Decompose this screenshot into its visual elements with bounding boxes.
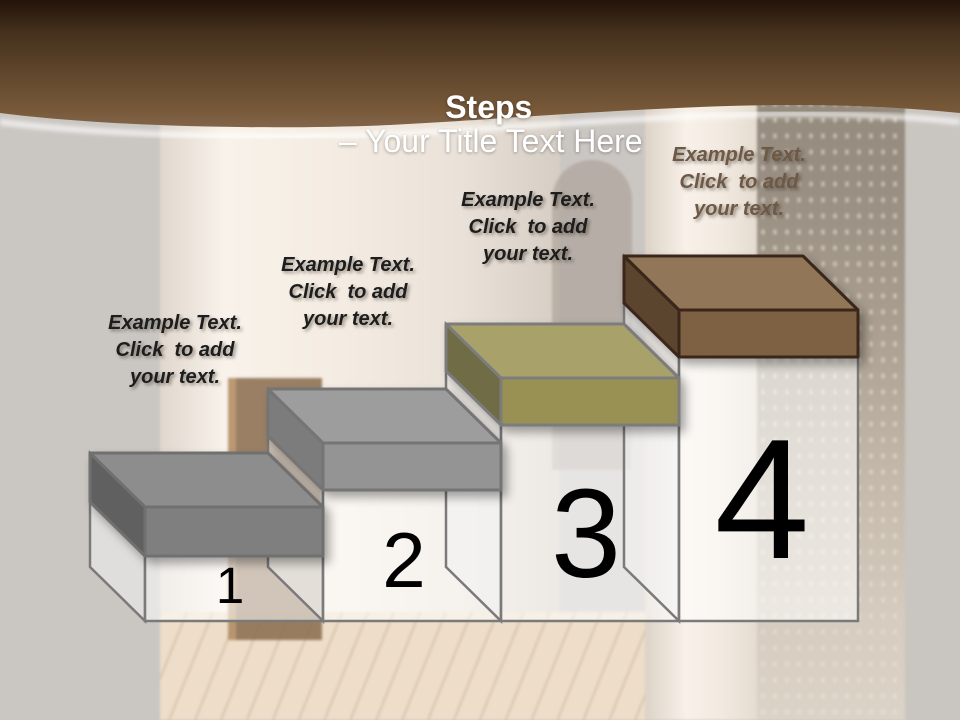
title-rest-text: – Your Title Text Here bbox=[339, 123, 643, 159]
step-1-lid-front[interactable] bbox=[145, 507, 323, 556]
step-3-lid-front[interactable] bbox=[501, 378, 679, 425]
slide-canvas: 1 2 3 4 Example Text. Click to add your … bbox=[0, 0, 960, 720]
step-2-lid-front[interactable] bbox=[323, 443, 501, 490]
step-2-label-line-3: your text. bbox=[248, 306, 448, 333]
step-4-number[interactable]: 4 bbox=[714, 404, 809, 595]
step-3-number[interactable]: 3 bbox=[551, 463, 621, 604]
step-2-label-line-1: Example Text. bbox=[248, 252, 448, 279]
step-3-label[interactable]: Example Text. Click to add your text. bbox=[428, 187, 628, 268]
step-4-label-line-3: your text. bbox=[639, 196, 839, 223]
step-2-label[interactable]: Example Text. Click to add your text. bbox=[248, 252, 448, 333]
step-2-number[interactable]: 2 bbox=[382, 516, 425, 604]
step-3-label-line-2: Click to add bbox=[428, 214, 628, 241]
title-bold-text: Steps bbox=[445, 89, 532, 125]
slide-title[interactable]: Steps – Your Title Text Here bbox=[0, 56, 951, 192]
step-1-number[interactable]: 1 bbox=[216, 557, 244, 614]
step-2-label-line-2: Click to add bbox=[248, 279, 448, 306]
step-1-label-line-1: Example Text. bbox=[75, 310, 275, 337]
step-3-label-line-3: your text. bbox=[428, 241, 628, 268]
step-1-label-line-3: your text. bbox=[75, 364, 275, 391]
step-4-lid-front[interactable] bbox=[679, 310, 858, 357]
step-1-label-line-2: Click to add bbox=[75, 337, 275, 364]
step-1-label[interactable]: Example Text. Click to add your text. bbox=[75, 310, 275, 391]
